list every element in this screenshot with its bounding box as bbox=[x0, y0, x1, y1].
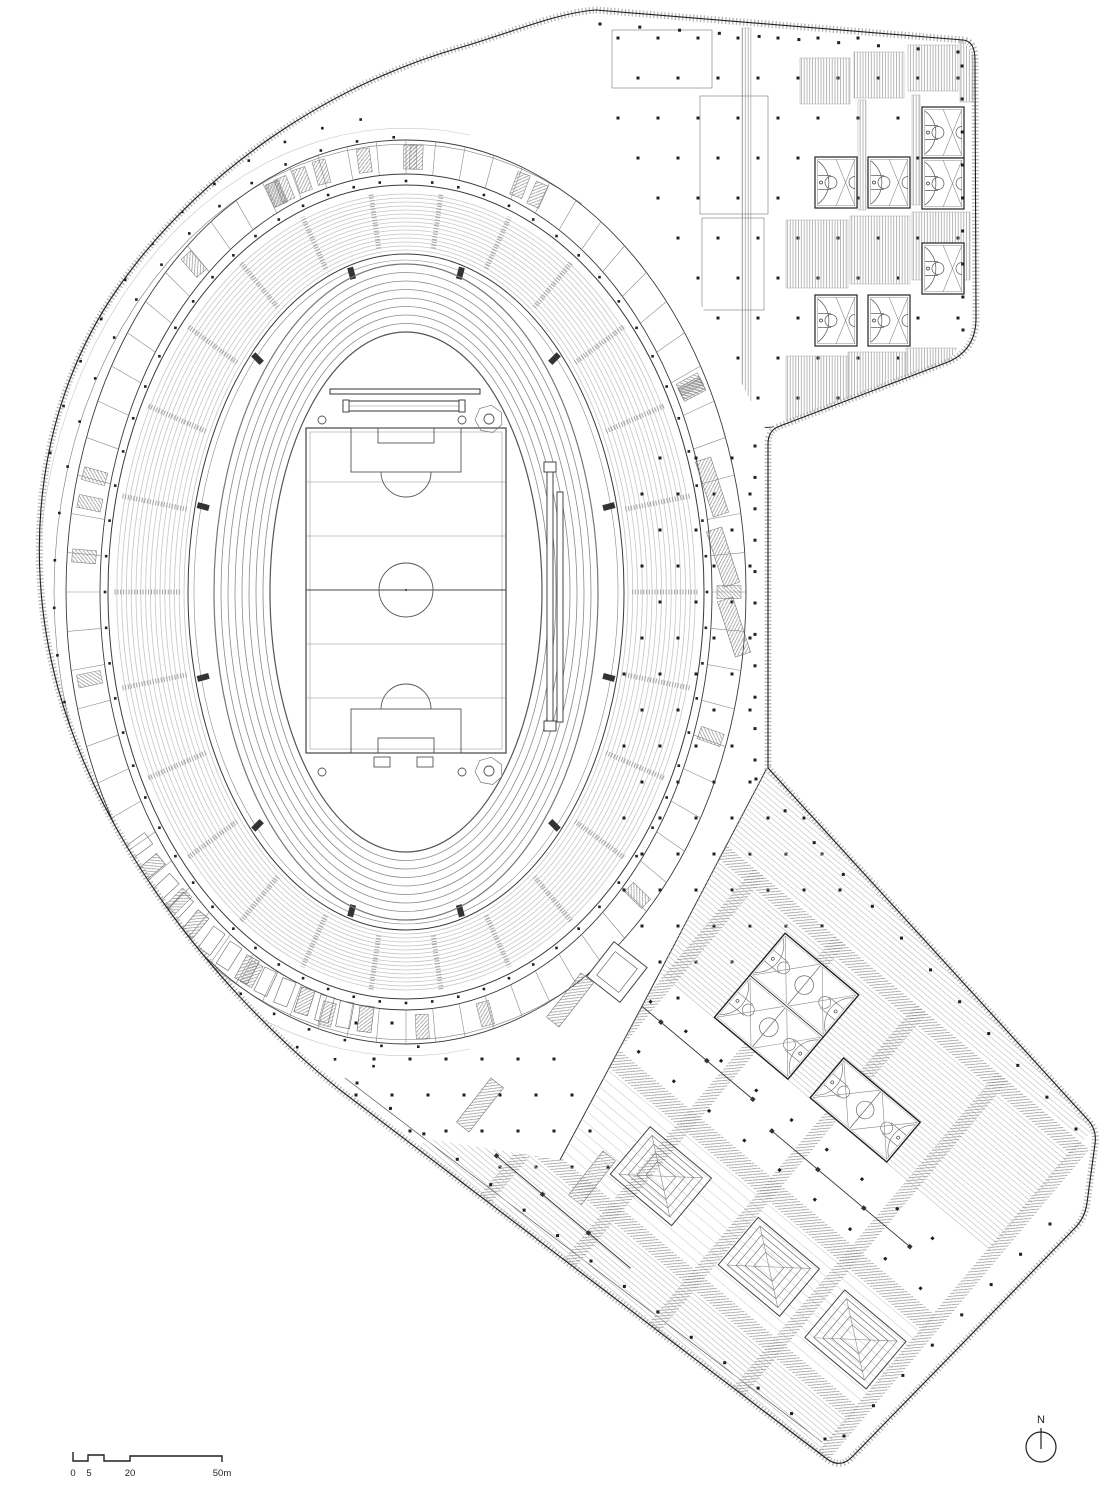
basketball-half-court bbox=[815, 157, 857, 208]
basketball-half-court bbox=[922, 243, 964, 294]
roof-beam bbox=[475, 136, 595, 166]
lower-wing bbox=[386, 756, 1114, 1500]
basketball-half-court bbox=[815, 295, 857, 346]
scale-bar-rule bbox=[73, 1452, 222, 1462]
plan-sheet: 0 5 20 50m N bbox=[0, 0, 1114, 1500]
plan-interior bbox=[33, 23, 1114, 1500]
basketball-half-court bbox=[922, 158, 964, 209]
basketball-half-court bbox=[868, 295, 910, 346]
skylight bbox=[610, 1127, 711, 1226]
scale-tick-50m: 50m bbox=[213, 1468, 232, 1479]
scale-tick-0: 0 bbox=[70, 1468, 75, 1479]
scale-tick-20: 20 bbox=[125, 1468, 136, 1479]
north-arrow-icon: N bbox=[1026, 1414, 1056, 1462]
lower-wing-local bbox=[386, 756, 1114, 1500]
soccer-field bbox=[306, 428, 506, 767]
basketball-half-court bbox=[868, 157, 910, 208]
scale-bar: 0 5 20 50m bbox=[70, 1452, 231, 1479]
scale-tick-5: 5 bbox=[86, 1468, 91, 1479]
north-label: N bbox=[1037, 1414, 1045, 1426]
basketball-half-court bbox=[922, 107, 964, 158]
upper-wing bbox=[475, 28, 973, 433]
floor-plan-canvas: 0 5 20 50m N bbox=[0, 0, 1114, 1500]
